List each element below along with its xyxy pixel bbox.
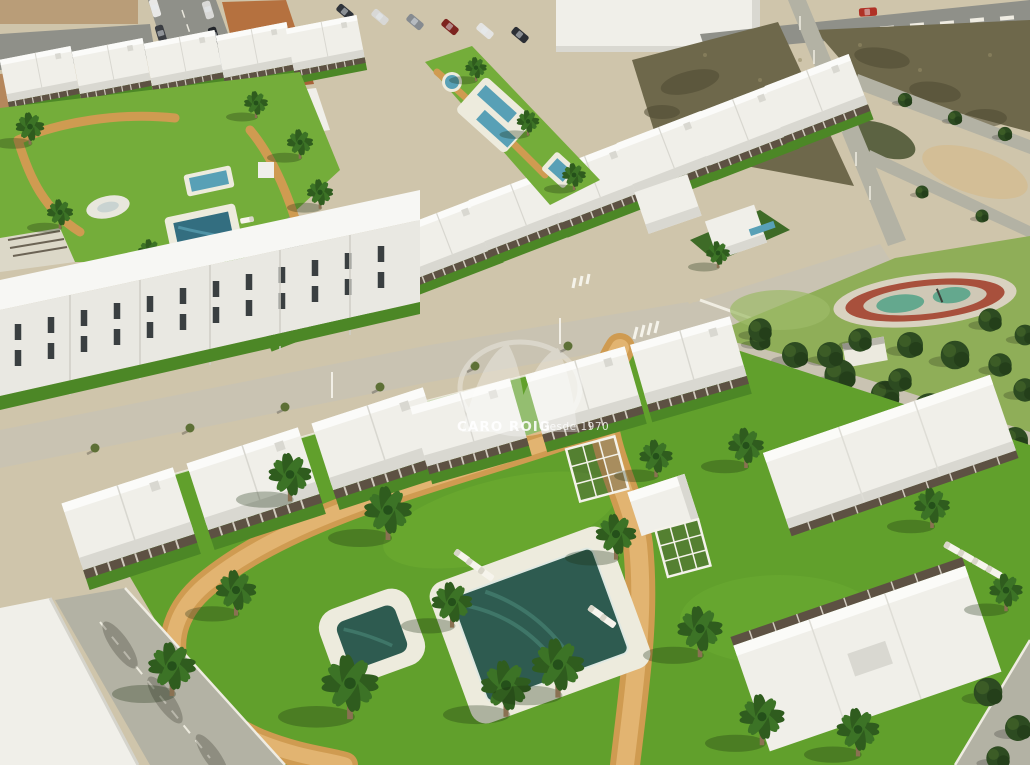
red-car (859, 7, 878, 17)
watermark-title: CARO ROIG (457, 419, 551, 435)
render-canvas: CARO ROIG Desde 1970 (0, 0, 1030, 765)
storage-cube (258, 162, 274, 178)
watermark-subtitle: Desde 1970 (541, 421, 609, 433)
lawn-patch (730, 290, 830, 330)
aerial-render-image: CARO ROIG Desde 1970 (0, 0, 1030, 765)
